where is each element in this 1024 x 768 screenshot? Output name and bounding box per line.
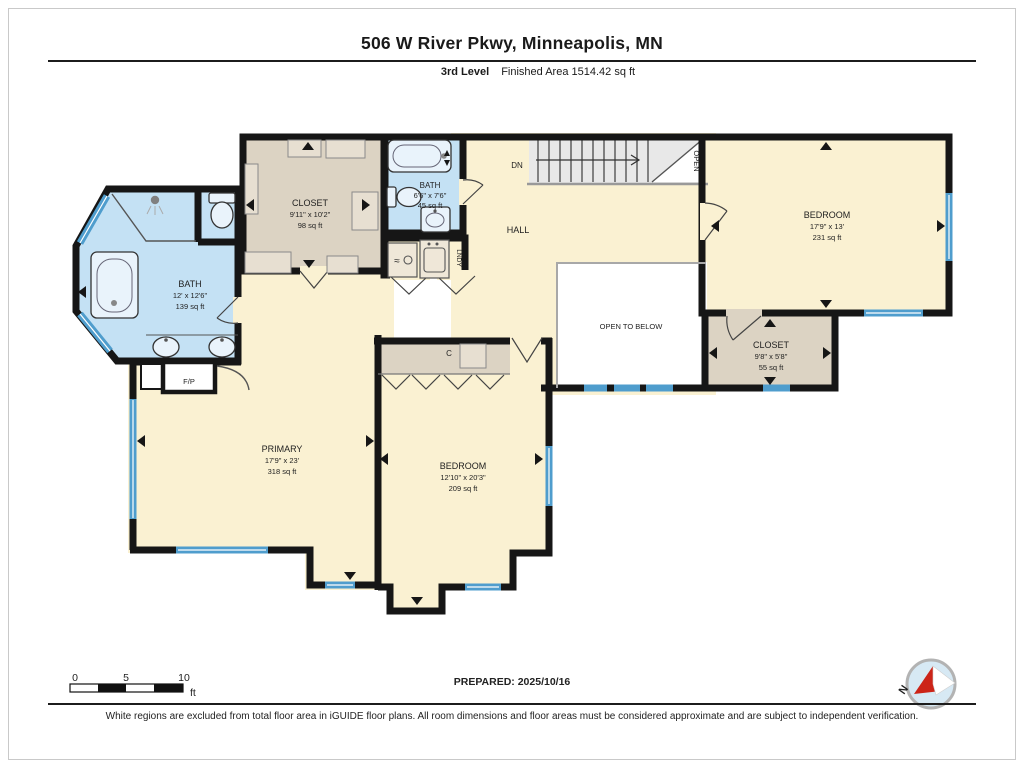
primary-area: 318 sq ft — [268, 467, 298, 476]
bath-small-name: BATH — [420, 181, 441, 190]
disclaimer-text: White regions are excluded from total fl… — [0, 711, 1024, 722]
bath-main-dims: 12' x 12'6" — [173, 291, 208, 300]
sink-small-icon — [421, 207, 450, 232]
bedroom-bottom-name: BEDROOM — [440, 461, 487, 471]
primary-dims: 17'9" x 23' — [265, 456, 300, 465]
hall-label: HALL — [507, 225, 530, 235]
scale-unit-label: ft — [190, 687, 196, 699]
prepared-date-label: PREPARED: 2025/10/16 — [0, 676, 1024, 688]
fireplace-label: F/P — [183, 377, 195, 386]
stairs-dn-label: DN — [511, 161, 523, 170]
closet-c-shelf — [460, 344, 486, 368]
closet-right-dims: 9'8" x 5'8" — [755, 352, 788, 361]
footer-divider — [48, 703, 976, 705]
bathtub-small-icon — [388, 140, 451, 172]
bedroom-right-name: BEDROOM — [804, 210, 851, 220]
primary-name: PRIMARY — [262, 444, 303, 454]
closet-top-name: CLOSET — [292, 198, 329, 208]
bedroom-right-dims: 17'9" x 13' — [810, 222, 845, 231]
stairs-open-label: OPEN — [692, 150, 701, 171]
open-to-below-label: OPEN TO BELOW — [600, 322, 664, 331]
svg-text:≈: ≈ — [394, 256, 400, 267]
closet-c-label: C — [446, 349, 452, 358]
bedroom-bottom-area: 209 sq ft — [449, 484, 479, 493]
bath-main-area: 139 sq ft — [176, 302, 206, 311]
closet-right-name: CLOSET — [753, 340, 790, 350]
washer-icon — [420, 240, 449, 278]
bedroom-bottom-dims: 12'10" x 20'3" — [440, 473, 486, 482]
bath-small-dims: 6'6" x 7'6" — [414, 191, 447, 200]
toilet-main-icon — [209, 193, 235, 228]
floor-plan-page: 506 W River Pkwy, Minneapolis, MN 3rd Le… — [0, 0, 1024, 768]
bedroom-right-area: 231 sq ft — [813, 233, 843, 242]
dryer-icon: ≈ — [388, 243, 417, 277]
bath-small-area: 45 sq ft — [418, 201, 444, 210]
closet-right-area: 55 sq ft — [759, 363, 785, 372]
closet-top-dims: 9'11" x 10'2" — [290, 210, 331, 219]
floor-plan-drawing: ≈ — [0, 0, 1024, 768]
bath-main-name: BATH — [178, 279, 201, 289]
closet-top-area: 98 sq ft — [298, 221, 324, 230]
laundry-label: LNDY — [455, 249, 462, 267]
bathtub-main-icon — [91, 252, 138, 318]
